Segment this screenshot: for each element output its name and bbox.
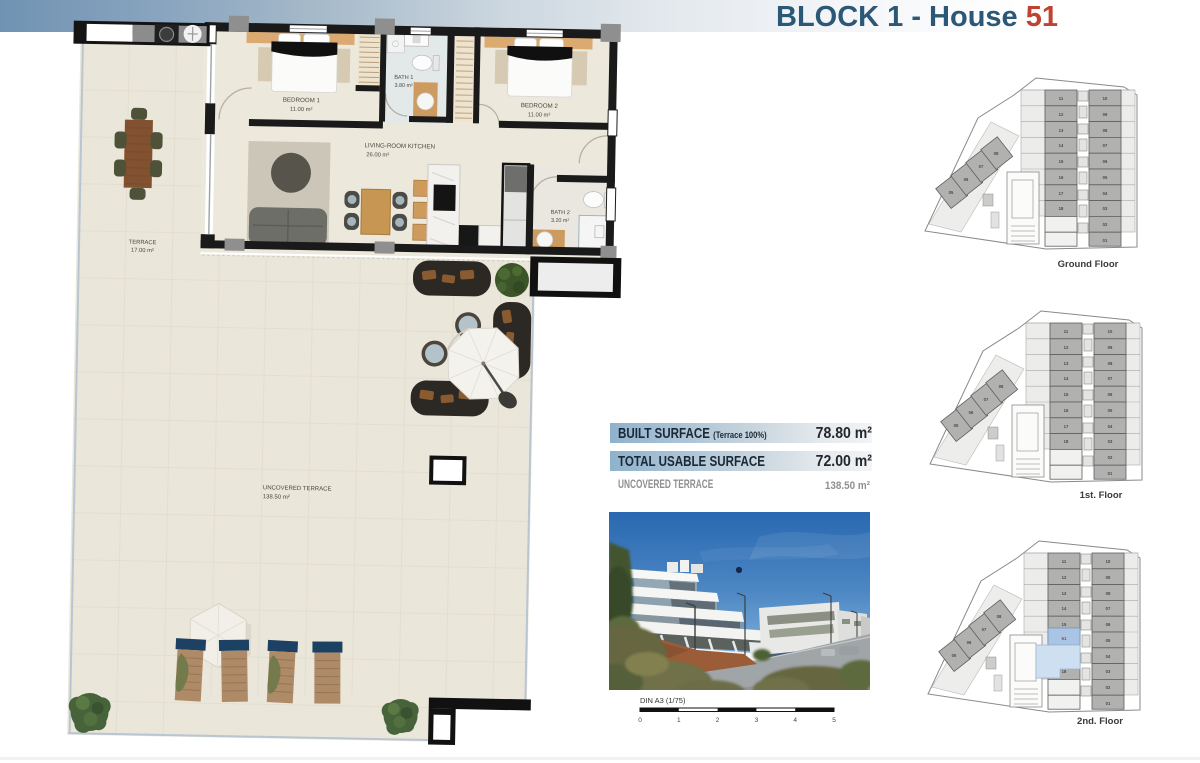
svg-text:11.00 m²: 11.00 m² — [290, 107, 313, 113]
svg-text:1: 1 — [677, 717, 681, 724]
svg-text:11.00 m²: 11.00 m² — [528, 112, 551, 118]
svg-text:BATH 1: BATH 1 — [394, 75, 413, 81]
svg-text:17.00 m²: 17.00 m² — [131, 248, 154, 254]
svg-text:51: 51 — [1061, 636, 1067, 641]
svg-text:3: 3 — [755, 717, 759, 724]
svg-text:1st. Floor: 1st. Floor — [1080, 490, 1123, 501]
svg-text:BEDROOM 2: BEDROOM 2 — [521, 102, 559, 110]
svg-text:4: 4 — [793, 717, 797, 724]
svg-text:5: 5 — [832, 717, 836, 724]
svg-text:138.50 m²: 138.50 m² — [263, 494, 290, 501]
svg-text:DIN A3 (1/75): DIN A3 (1/75) — [640, 696, 686, 705]
svg-text:2: 2 — [716, 717, 720, 724]
svg-text:0: 0 — [638, 717, 642, 724]
svg-text:TERRACE: TERRACE — [129, 240, 157, 247]
svg-text:BEDROOM 1: BEDROOM 1 — [283, 97, 321, 105]
svg-text:3.80 m²: 3.80 m² — [394, 83, 413, 89]
svg-text:2nd. Floor: 2nd. Floor — [1077, 716, 1123, 727]
svg-text:Ground Floor: Ground Floor — [1058, 259, 1119, 270]
svg-text:3.20 m²: 3.20 m² — [551, 218, 570, 224]
svg-text:LIVING-ROOM KITCHEN: LIVING-ROOM KITCHEN — [364, 142, 435, 150]
svg-text:BATH 2: BATH 2 — [551, 210, 570, 216]
svg-text:26.00 m²: 26.00 m² — [366, 152, 389, 158]
